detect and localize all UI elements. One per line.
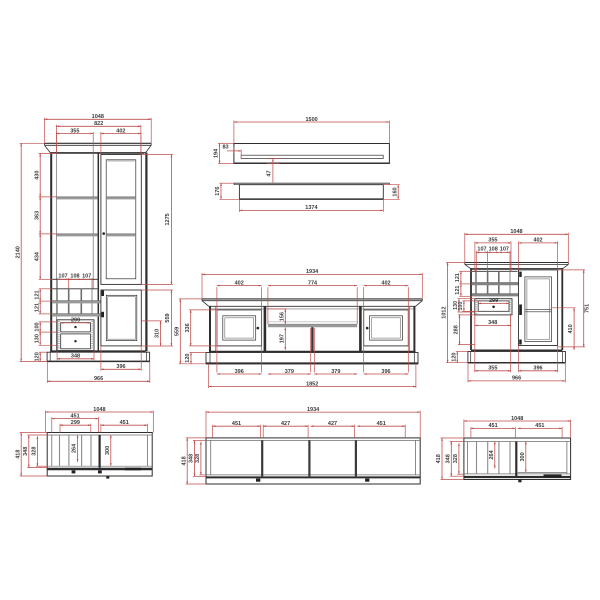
svg-text:402: 402	[533, 238, 542, 244]
svg-text:121: 121	[34, 290, 40, 299]
svg-text:427: 427	[328, 421, 337, 427]
svg-text:418: 418	[436, 454, 442, 463]
svg-text:336: 336	[185, 323, 191, 332]
svg-text:108: 108	[70, 273, 79, 279]
svg-text:1500: 1500	[305, 117, 317, 123]
svg-text:300: 300	[520, 452, 526, 461]
svg-text:100: 100	[34, 322, 40, 331]
svg-text:348: 348	[445, 454, 451, 463]
svg-text:107: 107	[82, 273, 91, 279]
svg-text:1048: 1048	[510, 229, 522, 235]
svg-text:355: 355	[488, 238, 497, 244]
svg-text:355: 355	[488, 366, 497, 372]
svg-text:402: 402	[235, 280, 244, 286]
svg-text:379: 379	[331, 369, 340, 375]
svg-text:108: 108	[489, 247, 498, 253]
svg-text:83: 83	[222, 145, 228, 151]
svg-text:1048: 1048	[511, 416, 523, 422]
svg-text:1048: 1048	[93, 407, 105, 413]
svg-text:451: 451	[120, 420, 129, 426]
svg-text:310: 310	[155, 329, 161, 338]
svg-text:559: 559	[165, 313, 171, 322]
svg-text:299: 299	[71, 318, 80, 324]
svg-text:451: 451	[489, 423, 498, 429]
svg-text:348: 348	[71, 354, 80, 360]
svg-text:264: 264	[489, 449, 495, 459]
svg-text:396: 396	[381, 369, 390, 375]
svg-text:451: 451	[232, 421, 241, 427]
svg-text:120: 120	[34, 352, 40, 361]
svg-text:430: 430	[34, 171, 40, 180]
svg-text:451: 451	[535, 423, 544, 429]
svg-text:328: 328	[453, 454, 459, 463]
svg-text:300: 300	[105, 446, 111, 455]
svg-text:418: 418	[15, 450, 21, 459]
svg-text:751: 751	[585, 304, 591, 313]
svg-text:418: 418	[181, 456, 187, 465]
svg-text:120: 120	[451, 353, 457, 362]
svg-text:288: 288	[454, 325, 460, 334]
svg-text:410: 410	[568, 324, 574, 333]
svg-text:130: 130	[34, 334, 40, 343]
svg-text:1934: 1934	[306, 269, 319, 275]
svg-text:1048: 1048	[92, 114, 104, 120]
svg-text:160: 160	[393, 187, 399, 196]
svg-text:822: 822	[94, 121, 103, 127]
svg-text:348: 348	[23, 447, 29, 456]
svg-text:194: 194	[214, 148, 220, 158]
svg-text:451: 451	[377, 421, 386, 427]
svg-text:402: 402	[381, 280, 390, 286]
svg-text:121: 121	[455, 273, 461, 282]
svg-text:120: 120	[185, 354, 191, 363]
svg-text:121: 121	[34, 303, 40, 312]
svg-text:427: 427	[281, 421, 290, 427]
svg-text:197: 197	[279, 334, 285, 343]
svg-text:966: 966	[94, 376, 103, 382]
svg-text:299: 299	[489, 298, 498, 304]
svg-text:156: 156	[279, 312, 285, 321]
svg-text:402: 402	[116, 128, 125, 134]
svg-text:328: 328	[195, 454, 201, 463]
svg-text:107: 107	[477, 247, 486, 253]
svg-text:966: 966	[512, 376, 521, 382]
svg-text:47: 47	[267, 170, 273, 176]
svg-text:1852: 1852	[306, 381, 318, 387]
svg-text:264: 264	[72, 443, 78, 453]
svg-text:107: 107	[58, 273, 67, 279]
svg-text:559: 559	[174, 327, 180, 336]
svg-text:348: 348	[488, 320, 497, 326]
svg-text:774: 774	[308, 280, 318, 286]
svg-text:396: 396	[533, 366, 542, 372]
svg-text:379: 379	[285, 369, 294, 375]
svg-text:1374: 1374	[305, 205, 318, 211]
svg-text:121: 121	[455, 286, 461, 295]
svg-text:100: 100	[458, 302, 464, 311]
svg-text:396: 396	[116, 364, 125, 370]
svg-text:348: 348	[189, 454, 195, 463]
svg-text:434: 434	[34, 251, 40, 261]
svg-text:328: 328	[32, 447, 38, 456]
svg-text:355: 355	[70, 128, 79, 134]
svg-text:1012: 1012	[442, 306, 448, 318]
svg-text:107: 107	[500, 247, 509, 253]
svg-text:299: 299	[71, 420, 80, 426]
svg-text:176: 176	[215, 187, 221, 196]
svg-text:2140: 2140	[15, 246, 21, 258]
svg-text:396: 396	[235, 369, 244, 375]
svg-text:1275: 1275	[165, 213, 171, 225]
svg-text:1934: 1934	[307, 407, 320, 413]
svg-text:451: 451	[71, 413, 80, 419]
svg-text:363: 363	[34, 211, 40, 220]
